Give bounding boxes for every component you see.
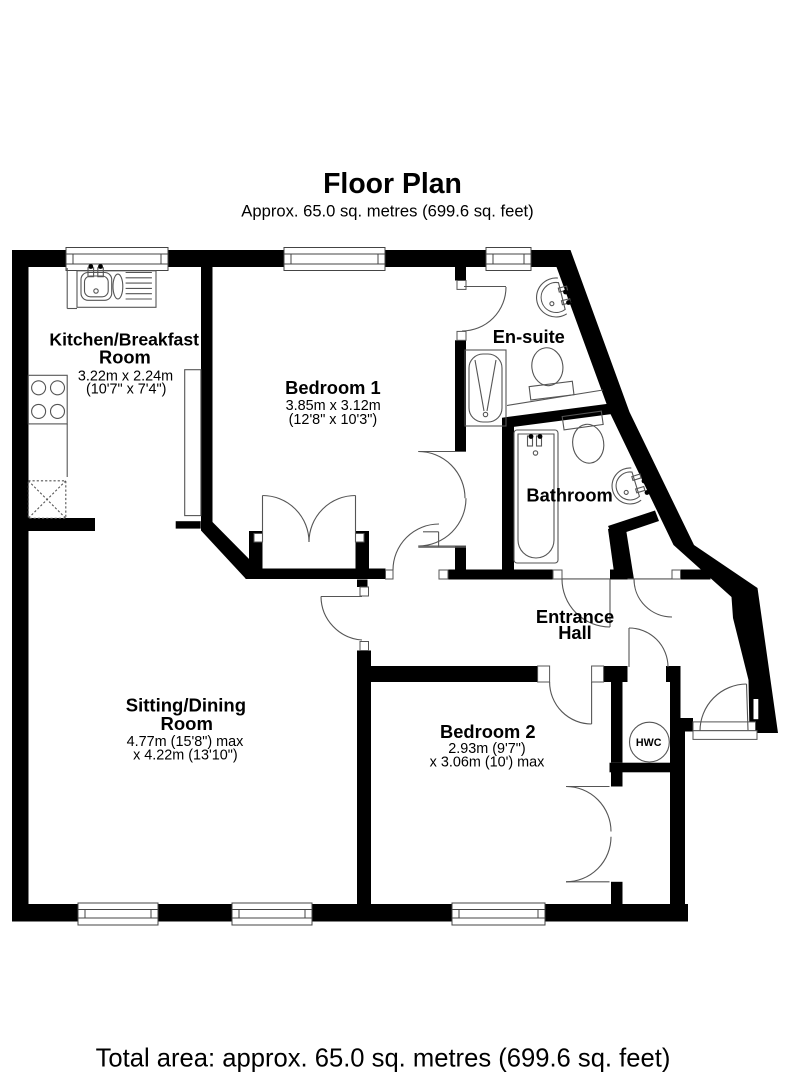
svg-text:Hall: Hall	[558, 622, 592, 643]
svg-text:Bedroom 2: Bedroom 2	[440, 721, 536, 742]
svg-text:Total area: approx. 65.0 sq. m: Total area: approx. 65.0 sq. metres (699…	[96, 1045, 671, 1073]
svg-text:(10'7" x 7'4"): (10'7" x 7'4")	[86, 382, 167, 398]
svg-text:Room: Room	[160, 713, 212, 734]
svg-text:(12'8" x 10'3"): (12'8" x 10'3")	[289, 412, 378, 428]
svg-text:Floor Plan: Floor Plan	[323, 168, 462, 200]
svg-text:HWC: HWC	[636, 737, 662, 749]
svg-text:Bathroom: Bathroom	[526, 485, 612, 506]
svg-text:Approx. 65.0 sq. metres (699.6: Approx. 65.0 sq. metres (699.6 sq. feet)	[241, 202, 533, 221]
svg-text:x 4.22m (13'10"): x 4.22m (13'10")	[133, 748, 238, 764]
svg-text:En-suite: En-suite	[493, 326, 565, 347]
svg-text:x 3.06m (10') max: x 3.06m (10') max	[430, 755, 546, 771]
svg-text:Room: Room	[99, 346, 151, 367]
svg-text:Bedroom 1: Bedroom 1	[285, 377, 381, 398]
